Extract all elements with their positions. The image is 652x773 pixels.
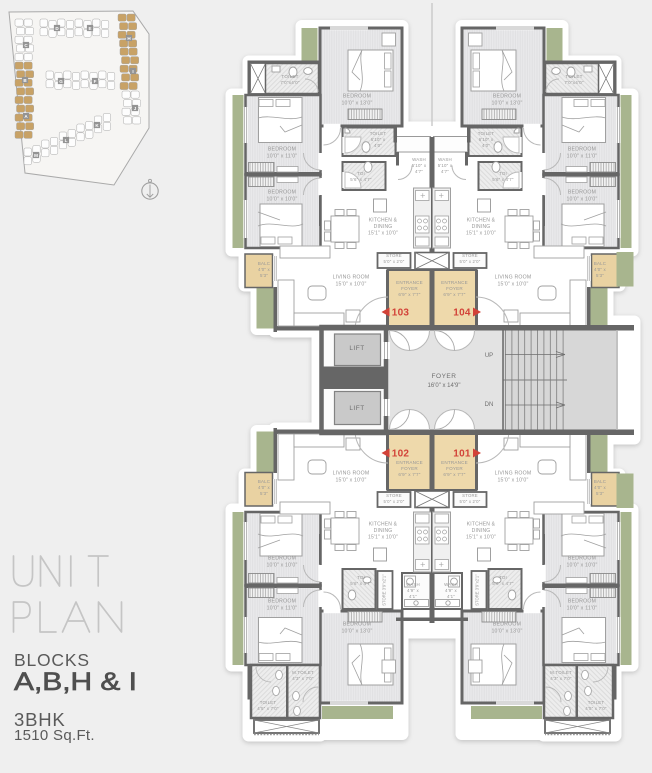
svg-text:STORE5'0" x 2'0": STORE5'0" x 2'0" (384, 493, 405, 504)
svg-text:BLOCKS: BLOCKS (14, 650, 90, 670)
svg-text:1510 Sq.Ft.: 1510 Sq.Ft. (14, 727, 95, 744)
svg-text:STORE 3'9"x2'1": STORE 3'9"x2'1" (382, 574, 387, 606)
svg-text:BEDROOM10'0" x 13'0": BEDROOM10'0" x 13'0" (341, 94, 372, 107)
svg-text:STORE5'0" x 2'0": STORE5'0" x 2'0" (460, 253, 481, 264)
svg-text:STORE 3'9"x2'1": STORE 3'9"x2'1" (475, 574, 480, 606)
svg-text:BEDROOM10'0" x 11'0": BEDROOM10'0" x 11'0" (567, 599, 598, 612)
svg-text:102: 102 (392, 449, 410, 460)
svg-text:LIVING ROOM15'0" x 10'0": LIVING ROOM15'0" x 10'0" (333, 275, 370, 288)
svg-text:STORE5'0" x 2'0": STORE5'0" x 2'0" (460, 493, 481, 504)
svg-text:LIFT: LIFT (349, 345, 364, 352)
svg-text:BEDROOM10'0" x 11'0": BEDROOM10'0" x 11'0" (567, 147, 598, 160)
svg-text:LIFT: LIFT (349, 405, 364, 412)
svg-text:TOILET4'5" x 7'0": TOILET4'5" x 7'0" (257, 700, 279, 711)
svg-text:BEDROOM10'0" x 10'0": BEDROOM10'0" x 10'0" (566, 556, 597, 569)
svg-text:FOYER: FOYER (432, 373, 457, 380)
svg-text:BEDROOM10'0" x 13'0": BEDROOM10'0" x 13'0" (491, 622, 522, 635)
svg-text:TOILET4'5" x 7'0": TOILET4'5" x 7'0" (585, 700, 607, 711)
svg-text:BEDROOM10'0" x 13'0": BEDROOM10'0" x 13'0" (341, 622, 372, 635)
svg-text:L: L (65, 138, 68, 143)
svg-text:BEDROOM10'0" x 10'0": BEDROOM10'0" x 10'0" (566, 190, 597, 203)
svg-text:G: G (59, 79, 63, 84)
svg-text:TOILET7'0"x4'0": TOILET7'0"x4'0" (564, 74, 584, 85)
svg-text:LIVING ROOM15'0" x 10'0": LIVING ROOM15'0" x 10'0" (495, 275, 532, 288)
svg-text:E: E (88, 26, 91, 31)
svg-text:J: J (134, 106, 137, 111)
svg-text:BEDROOM10'0" x 10'0": BEDROOM10'0" x 10'0" (266, 190, 297, 203)
svg-text:DN: DN (485, 402, 494, 408)
svg-text:16'0" x 14'9": 16'0" x 14'9" (428, 383, 461, 389)
svg-text:101: 101 (453, 449, 471, 460)
svg-text:BEDROOM10'0" x 13'0": BEDROOM10'0" x 13'0" (491, 94, 522, 107)
svg-text:UP: UP (485, 353, 493, 359)
svg-text:LIVING ROOM15'0" x 10'0": LIVING ROOM15'0" x 10'0" (333, 471, 370, 484)
svg-text:M.TOILET4'3" x 7'0": M.TOILET4'3" x 7'0" (550, 670, 572, 681)
svg-text:STORE5'0" x 2'0": STORE5'0" x 2'0" (384, 253, 405, 264)
svg-text:BEDROOM10'0" x 10'0": BEDROOM10'0" x 10'0" (266, 556, 297, 569)
svg-text:104: 104 (453, 308, 471, 319)
svg-text:TOILET7'0"x4'0": TOILET7'0"x4'0" (280, 74, 300, 85)
svg-text:M: M (34, 153, 38, 158)
svg-text:BEDROOM10'0" x 11'0": BEDROOM10'0" x 11'0" (267, 599, 298, 612)
svg-text:M.TOILET4'3" x 7'0": M.TOILET4'3" x 7'0" (292, 670, 314, 681)
svg-text:103: 103 (392, 308, 410, 319)
svg-text:I: I (132, 69, 133, 74)
svg-text:A,B,H & I: A,B,H & I (14, 668, 137, 696)
svg-text:F: F (94, 79, 97, 84)
svg-text:LIVING ROOM15'0" x 10'0": LIVING ROOM15'0" x 10'0" (495, 471, 532, 484)
svg-text:BEDROOM10'0" x 11'0": BEDROOM10'0" x 11'0" (267, 147, 298, 160)
